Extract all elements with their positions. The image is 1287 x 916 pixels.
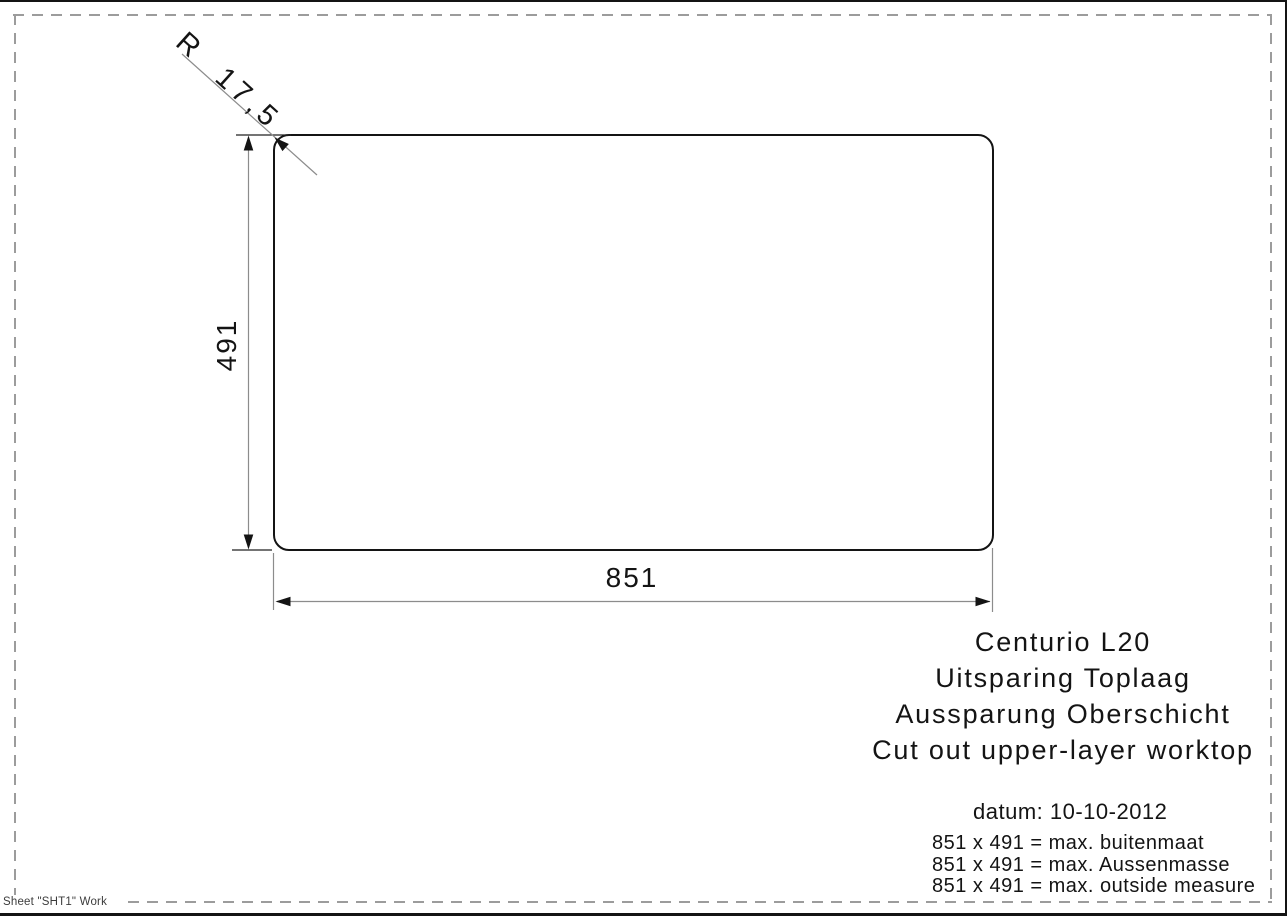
cad-linework: [0, 2, 1287, 916]
date-label: datum: 10-10-2012: [973, 799, 1167, 825]
width-dimension-label: 851: [582, 562, 682, 594]
measure-notes: 851 x 491 = max. buitenmaat 851 x 491 = …: [932, 833, 1255, 898]
note-nl: 851 x 491 = max. buitenmaat: [932, 833, 1255, 855]
title-line-nl: Uitsparing Toplaag: [855, 660, 1271, 696]
drawing-sheet: R 17,5 491 851 Centurio L20 Uitsparing T…: [0, 0, 1287, 916]
product-name: Centurio L20: [855, 624, 1271, 660]
note-en: 851 x 491 = max. outside measure: [932, 876, 1255, 898]
title-block: Centurio L20 Uitsparing Toplaag Aussparu…: [855, 624, 1271, 768]
dim-arrow-left-icon: [276, 597, 291, 607]
dim-arrow-down-icon: [244, 535, 254, 550]
sheet-name-label: Sheet "SHT1" Work: [3, 896, 107, 908]
dim-arrow-up-icon: [244, 136, 254, 151]
title-line-de: Aussparung Oberschicht: [855, 696, 1271, 732]
height-dimension-label: 491: [211, 319, 243, 372]
note-de: 851 x 491 = max. Aussenmasse: [932, 855, 1255, 877]
cutout-outline: [274, 135, 993, 550]
dim-arrow-right-icon: [976, 597, 991, 607]
title-line-en: Cut out upper-layer worktop: [855, 732, 1271, 768]
